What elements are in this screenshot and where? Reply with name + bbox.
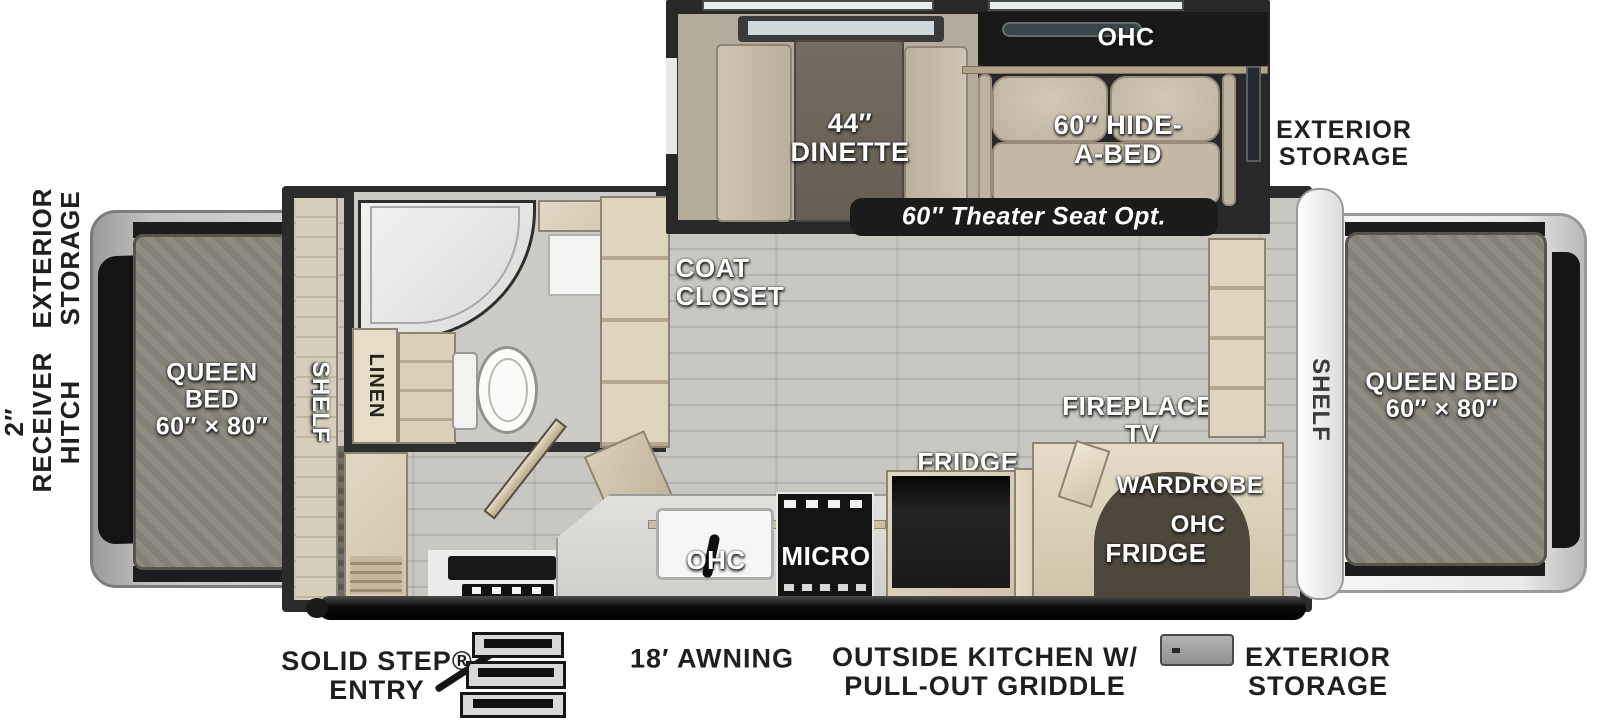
label-line: HITCH (56, 352, 84, 493)
dinette-bench-left (716, 44, 792, 222)
label-line: LINEN (364, 354, 386, 419)
label-right-shelf: SHELF (1307, 358, 1333, 442)
range-burners-row1 (784, 500, 866, 508)
slide-window-left (666, 58, 677, 154)
label-line: STORAGE (1245, 672, 1391, 701)
label-coat-closet: COAT CLOSET (676, 254, 784, 310)
hide-a-bed-rail (962, 66, 1268, 74)
label-line: STORAGE (56, 188, 84, 329)
label-line: EXTERIOR (1245, 643, 1391, 672)
entry-step-3 (460, 692, 566, 718)
slide-window-right (1246, 66, 1261, 162)
label-line: EXTERIOR (28, 188, 56, 329)
entry-mat (448, 556, 556, 580)
label-wardrobe-fridge: FRIDGE (1105, 539, 1206, 567)
label-dinette: 44″ DINETTE (790, 109, 909, 167)
label-line: 2″ (0, 352, 28, 493)
label-line: 60″ × 80″ (156, 414, 269, 441)
label-line: ENTRY (281, 676, 472, 705)
label-bottom-right-storage: EXTERIOR STORAGE (1245, 643, 1391, 701)
label-line: PULL-OUT GRIDDLE (832, 672, 1138, 701)
slide-window-top-right (988, 0, 1184, 11)
label-line: SHELF (307, 361, 333, 442)
awning-rail (318, 596, 1306, 620)
sofa-armrest-right (1222, 74, 1236, 206)
label-linen: LINEN (364, 354, 386, 419)
label-right-queen-bed: QUEEN BED 60″ × 80″ (1365, 369, 1518, 423)
label-solid-step-entry: SOLID STEP® ENTRY (281, 647, 472, 705)
label-theater-seat: 60″ Theater Seat Opt. (902, 204, 1166, 231)
label-line: BED (156, 387, 269, 414)
label-left-exterior-storage: EXTERIOR STORAGE (28, 188, 84, 329)
label-line: DINETTE (790, 138, 909, 167)
label-line: 60″ × 80″ (1365, 396, 1518, 423)
coat-closet (600, 196, 670, 448)
label-slide-ohc: OHC (1097, 25, 1154, 52)
label-line: OHC (1171, 512, 1226, 538)
range-burners-row2 (784, 584, 866, 591)
label-line: FIREPLACE/ (1062, 392, 1222, 420)
label-line: WARDROBE (1117, 473, 1264, 499)
label-outside-kitchen: OUTSIDE KITCHEN W/ PULL-OUT GRIDDLE (832, 643, 1138, 701)
label-line: COAT (676, 254, 784, 282)
right-bed-tent-flap (1552, 252, 1580, 548)
label-left-shelf: SHELF (307, 361, 333, 442)
left-bed-tent-flap (98, 255, 136, 544)
label-line: MICRO (781, 542, 870, 570)
label-line: OUTSIDE KITCHEN W/ (832, 643, 1138, 672)
label-line: 44″ (790, 109, 909, 138)
label-left-queen-bed: QUEEN BED 60″ × 80″ (156, 360, 269, 441)
label-line: A-BED (1054, 140, 1182, 169)
label-line: EXTERIOR (1276, 117, 1412, 144)
label-line: 60″ HIDE- (1054, 111, 1182, 140)
label-wardrobe-ohc: OHC (1171, 512, 1226, 538)
dinette-window-glass (748, 21, 934, 35)
sofa-armrest-left (978, 74, 992, 206)
wardrobe-vent (350, 556, 402, 594)
label-line: OHC (1097, 25, 1154, 52)
utility-box-latch (1172, 648, 1180, 653)
label-awning: 18′ AWNING (630, 644, 794, 673)
label-line: OHC (686, 546, 745, 574)
fridge-box (892, 476, 1010, 588)
label-line: SHELF (1307, 358, 1333, 442)
entry-step-2 (466, 661, 566, 689)
dinette-bench-right (904, 46, 968, 222)
label-top-right-storage: EXTERIOR STORAGE (1276, 117, 1412, 171)
label-kitchen-ohc: OHC (686, 546, 745, 574)
slide-window-top-left (702, 0, 934, 11)
entry-step-1 (472, 632, 564, 658)
label-line: QUEEN (156, 360, 269, 387)
bed-step-drawers (1208, 238, 1266, 438)
label-receiver-hitch: 2″ RECEIVER HITCH (0, 352, 84, 493)
label-wardrobe: WARDROBE (1117, 473, 1264, 499)
label-line: CLOSET (676, 282, 784, 310)
label-fireplace-tv: FIREPLACE/ TV (1062, 392, 1222, 448)
label-line: 60″ Theater Seat Opt. (902, 204, 1166, 231)
label-line: RECEIVER (28, 352, 56, 493)
label-hide-a-bed: 60″ HIDE- A-BED (1054, 111, 1182, 169)
floorplan-canvas: EXTERIOR STORAGE 2″ RECEIVER HITCH QUEEN… (0, 0, 1600, 720)
toilet-tank (452, 352, 478, 430)
label-line: QUEEN BED (1365, 369, 1518, 396)
label-micro: MICRO (781, 542, 870, 570)
label-line: SOLID STEP® (281, 647, 472, 676)
label-line: STORAGE (1276, 144, 1412, 171)
bath-cabinet (398, 332, 456, 444)
label-line: FRIDGE (1105, 539, 1206, 567)
label-line: 18′ AWNING (630, 644, 794, 673)
toilet-seat (488, 358, 528, 422)
awning-rail-endcap (306, 598, 328, 618)
entry-threshold-dashes (472, 587, 542, 594)
